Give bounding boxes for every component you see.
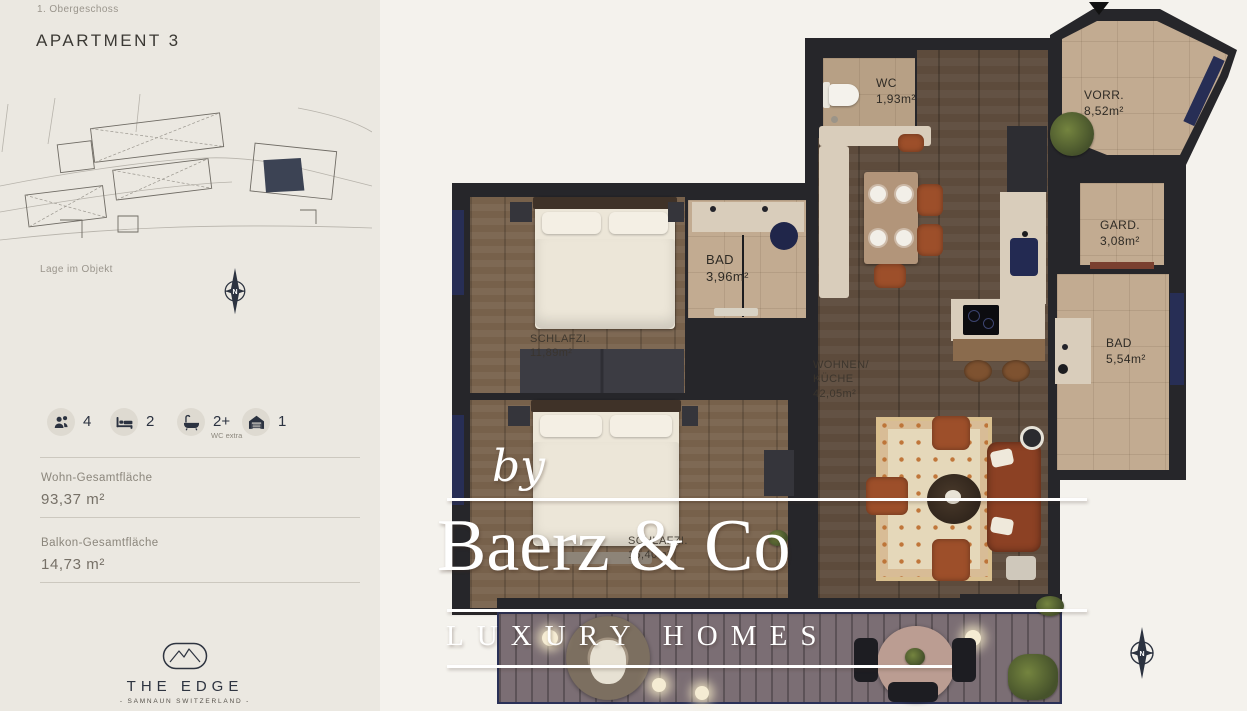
plate xyxy=(870,230,886,246)
mountain-logo-icon xyxy=(162,642,208,670)
room-label-bad-gross: BAD5,54m² xyxy=(1106,336,1146,367)
compass-icon: N xyxy=(219,266,251,318)
floor-label: 1. Obergeschoss xyxy=(37,4,119,15)
stat-bedrooms: 2 xyxy=(110,408,180,442)
shelf xyxy=(764,450,794,496)
door-threshold xyxy=(1090,262,1154,269)
divider xyxy=(40,457,360,458)
lantern xyxy=(652,678,666,692)
faucet xyxy=(1022,231,1028,237)
kitchen-sink xyxy=(1010,238,1038,276)
watermark-by: by xyxy=(492,441,545,492)
cooktop-ring xyxy=(983,318,994,329)
page-title: APARTMENT 3 xyxy=(36,31,181,51)
shrub xyxy=(1036,596,1064,616)
bed xyxy=(535,197,675,329)
entrance-arrow-icon xyxy=(1089,2,1109,15)
divider xyxy=(40,517,360,518)
bathroom-vanity xyxy=(1055,318,1091,384)
dining-chair xyxy=(874,264,906,288)
page: 1. Obergeschoss APARTMENT 3 xyxy=(0,0,1247,711)
room-label-vorraum: VORR.8,52m² xyxy=(1084,88,1124,119)
stat-baths-value: 2+ xyxy=(213,413,230,430)
faucet xyxy=(762,206,768,212)
floor-drain xyxy=(831,116,838,123)
room-label-wohnen-kueche: WOHNEN/ KÜCHE42,05m² xyxy=(813,358,869,401)
stat-garage: 1 xyxy=(242,408,312,442)
divider xyxy=(40,582,360,583)
dining-chair xyxy=(917,184,943,216)
brand-name: THE EDGE xyxy=(95,678,275,695)
bath-accessory xyxy=(1058,364,1068,374)
stat-bedrooms-value: 2 xyxy=(146,413,154,430)
dining-chair xyxy=(898,134,924,152)
watermark-brand: Baerz & Co xyxy=(437,504,790,589)
bath-icon xyxy=(177,408,205,436)
plant xyxy=(905,648,925,666)
site-plan-sketch xyxy=(0,90,372,262)
room-label-schlafzimmer-1: SCHLAFZI.11,89m² xyxy=(530,332,590,361)
nightstand xyxy=(668,202,684,222)
watermark-rule xyxy=(447,609,1087,612)
outdoor-chair xyxy=(888,682,938,702)
kitchen-tall-cabinet xyxy=(1007,126,1047,192)
compass-n-label: N xyxy=(219,289,251,296)
brand-logo: THE EDGE - SAMNAUN SWITZERLAND - xyxy=(95,642,275,705)
bath-mat xyxy=(714,308,758,316)
armchair xyxy=(932,539,970,581)
window xyxy=(1170,293,1184,385)
shrub xyxy=(1008,654,1058,700)
armchair xyxy=(932,416,970,450)
room-label-wc: WC1,93m² xyxy=(876,76,916,107)
toilet xyxy=(829,84,859,106)
compass-n-label: N xyxy=(1124,651,1160,658)
island-bar xyxy=(953,339,1045,361)
side-table xyxy=(1006,556,1036,580)
shower-head xyxy=(770,222,798,250)
faucet xyxy=(710,206,716,212)
armchair xyxy=(866,477,908,515)
window xyxy=(452,210,464,295)
garage-icon xyxy=(242,408,270,436)
watermark-rule xyxy=(447,498,1087,501)
bar-stool xyxy=(964,360,992,382)
living-area-label: Wohn-Gesamtfläche xyxy=(41,472,152,484)
stat-garage-value: 1 xyxy=(278,413,286,430)
outdoor-chair xyxy=(952,638,976,682)
living-area-value: 93,37 m² xyxy=(41,491,105,508)
nightstand xyxy=(508,406,530,426)
watermark-tagline: LUXURY HOMES xyxy=(446,620,830,653)
window xyxy=(452,415,464,505)
room-label-bad-klein: BAD3,96m² xyxy=(706,252,749,286)
compass-icon: N xyxy=(1124,624,1160,684)
site-plan xyxy=(0,90,372,262)
stat-baths-note: WC extra xyxy=(211,431,242,440)
nightstand xyxy=(682,406,698,426)
bar-stool xyxy=(1002,360,1030,382)
occupants-icon xyxy=(47,408,75,436)
dining-chair xyxy=(917,224,943,256)
brand-subtitle: - SAMNAUN SWITZERLAND - xyxy=(95,698,275,705)
watermark-rule xyxy=(447,665,952,668)
stat-occupants-value: 4 xyxy=(83,413,91,430)
dining-table xyxy=(864,172,918,264)
floor-lamp xyxy=(1020,426,1044,450)
balcony-area-label: Balkon-Gesamtfläche xyxy=(41,537,159,549)
lantern xyxy=(695,686,709,700)
site-plan-caption: Lage im Objekt xyxy=(40,264,113,275)
plate xyxy=(896,230,912,246)
bed-icon xyxy=(110,408,138,436)
plate xyxy=(870,186,886,202)
room-label-garderobe: GARD.3,08m² xyxy=(1100,218,1140,249)
cooktop-ring xyxy=(968,310,980,322)
faucet xyxy=(1062,344,1068,350)
cooktop xyxy=(963,305,999,335)
stat-occupants: 4 xyxy=(47,408,117,442)
dining-bench xyxy=(819,146,849,298)
balcony-area-value: 14,73 m² xyxy=(41,556,105,573)
outdoor-chair xyxy=(854,638,878,682)
highlighted-apartment-footprint xyxy=(260,154,308,196)
plate xyxy=(896,186,912,202)
flower-vase xyxy=(945,490,961,504)
nightstand xyxy=(510,202,532,222)
